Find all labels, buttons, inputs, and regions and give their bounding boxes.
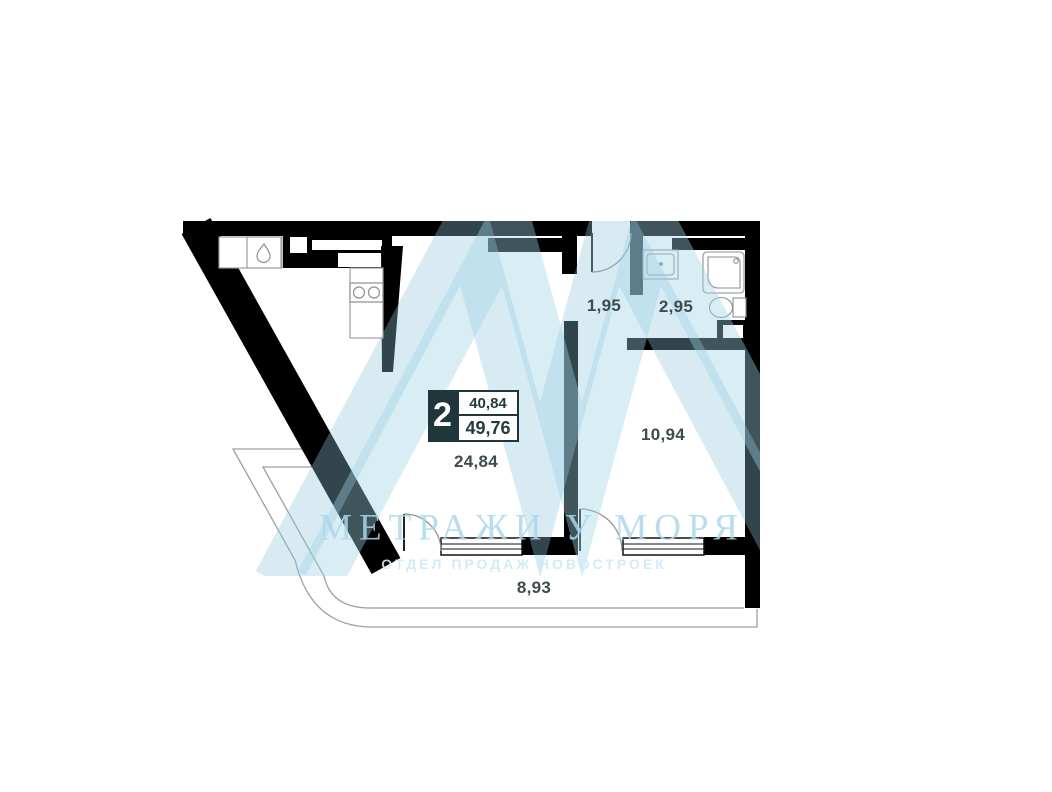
apartment-info-badge: 2 40,84 49,76 <box>428 390 519 442</box>
wall-hall-bathroom <box>630 231 643 295</box>
wash-basin-icon <box>643 250 678 279</box>
wall-bathroom-bottom <box>627 338 760 350</box>
total-area-value: 49,76 <box>457 414 519 442</box>
wall-right <box>745 221 760 608</box>
area-label-bedroom: 10,94 <box>641 425 685 445</box>
area-label-bathroom: 2,95 <box>659 297 693 317</box>
entrance-door <box>592 233 631 272</box>
watermark-title: МЕТРАЖИ У МОРЯ <box>319 507 745 550</box>
wall-bathroom-niche <box>672 238 747 250</box>
wall-top-right <box>630 221 760 236</box>
toilet-icon <box>710 298 747 318</box>
living-area-value: 40,84 <box>457 390 519 416</box>
watermark-subtitle: ОТДЕЛ ПРОДАЖ НОВОСТРОЕК <box>381 556 667 572</box>
stove-icon <box>350 283 383 302</box>
wall-kitchen-pier <box>381 246 403 372</box>
floor-plan-drawing <box>0 0 1052 792</box>
area-label-living: 24,84 <box>454 452 498 472</box>
area-label-hallway: 1,95 <box>587 296 621 316</box>
area-label-terrace: 8,93 <box>517 578 551 598</box>
wall-hall-living-stub <box>562 231 577 274</box>
badge-areas: 40,84 49,76 <box>457 390 519 442</box>
floor-plan-page: МЕТРАЖИ У МОРЯ ОТДЕЛ ПРОДАЖ НОВОСТРОЕК 1… <box>0 0 1052 792</box>
rooms-count: 2 <box>428 390 457 442</box>
shower-icon <box>703 252 744 293</box>
